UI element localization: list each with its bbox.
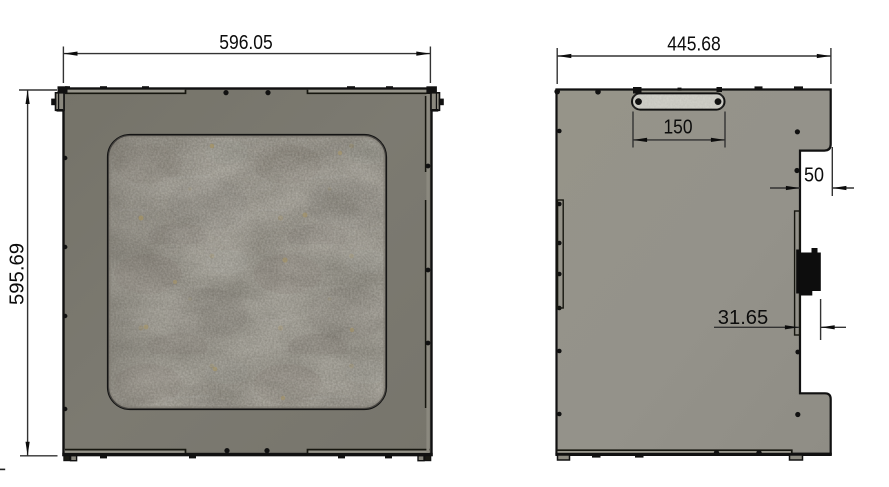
svg-text:150: 150	[664, 117, 693, 139]
svg-text:596.05: 596.05	[219, 32, 273, 54]
svg-text:595.69: 595.69	[7, 243, 29, 305]
svg-text:31.65: 31.65	[718, 307, 769, 329]
svg-text:445.68: 445.68	[667, 34, 721, 56]
svg-text:50: 50	[804, 165, 824, 187]
